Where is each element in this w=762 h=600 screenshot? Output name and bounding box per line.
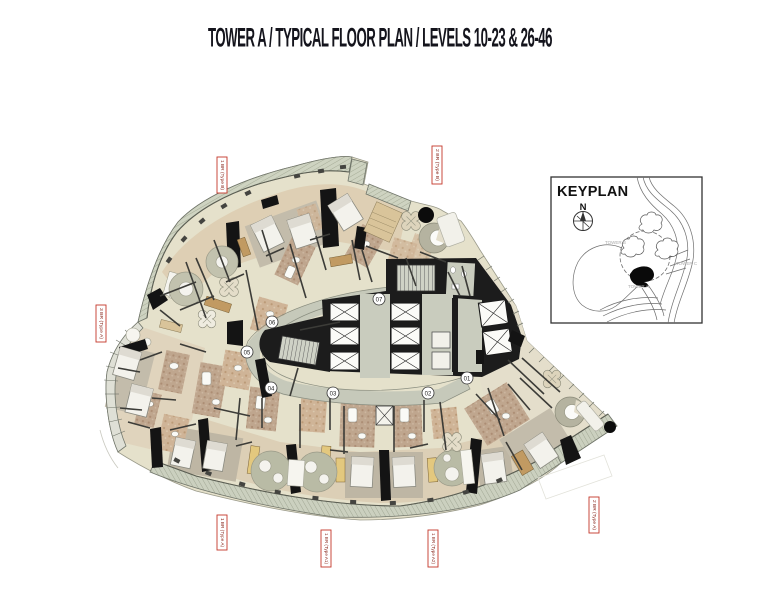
svg-text:07: 07 — [376, 298, 383, 304]
svg-text:03: 03 — [330, 392, 337, 398]
svg-text:TOWER A: TOWER A — [628, 284, 649, 289]
svg-text:2 BR (Type A): 2 BR (Type A) — [592, 500, 597, 530]
svg-text:05: 05 — [244, 351, 251, 357]
svg-text:1 BR (Type A2): 1 BR (Type A2) — [431, 533, 436, 564]
svg-text:1 BR (Type A): 1 BR (Type A) — [220, 518, 225, 547]
svg-text:3 BR (Type A): 3 BR (Type A) — [99, 308, 104, 340]
svg-text:TOWER A / TYPICAL FLOOR PLAN /: TOWER A / TYPICAL FLOOR PLAN / LEVELS 10… — [208, 23, 552, 53]
svg-text:02: 02 — [425, 392, 432, 398]
svg-text:2 BR (Type B): 2 BR (Type B) — [435, 149, 440, 182]
svg-text:KEYPLAN: KEYPLAN — [557, 184, 628, 200]
svg-text:01: 01 — [464, 377, 471, 383]
svg-text:06: 06 — [269, 321, 276, 327]
svg-text:04: 04 — [268, 387, 275, 393]
svg-text:1 BR (Type A1): 1 BR (Type A1) — [324, 533, 329, 564]
svg-text:TOWER B: TOWER B — [605, 240, 626, 245]
svg-text:TOWER C: TOWER C — [676, 261, 698, 266]
svg-text:1 BR (Type B): 1 BR (Type B) — [220, 160, 225, 190]
